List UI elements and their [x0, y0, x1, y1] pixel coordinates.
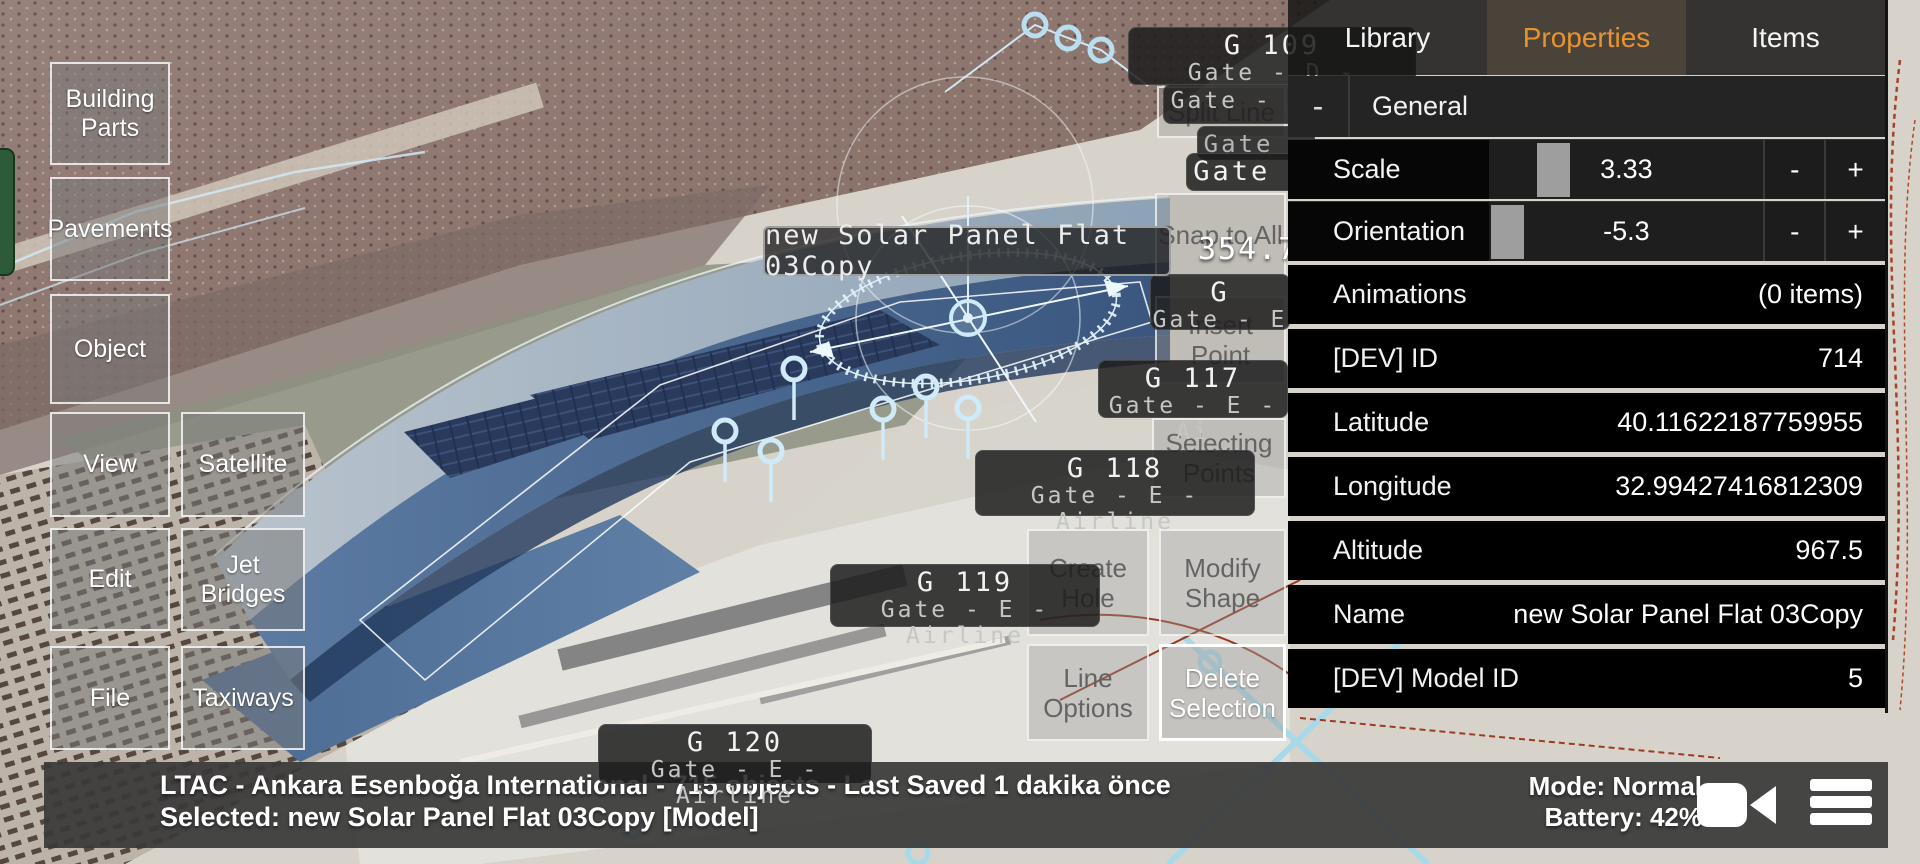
app-window: Building Parts Pavements Object View Sat…	[0, 0, 1920, 864]
name-value[interactable]: new Solar Panel Flat 03Copy	[1513, 599, 1885, 630]
sidebar-item-edit[interactable]: Edit	[50, 528, 170, 631]
scale-slider-handle[interactable]	[1537, 143, 1570, 197]
gate-label-gate-e: G Gate - E	[1150, 274, 1290, 330]
animations-label: Animations	[1288, 279, 1467, 310]
animations-value: (0 items)	[1758, 279, 1885, 310]
orientation-label: Orientation	[1288, 202, 1489, 261]
scale-increment-button[interactable]: +	[1824, 140, 1885, 199]
altitude-value[interactable]: 967.5	[1795, 535, 1885, 566]
dev-id-row: [DEV] ID 714	[1288, 329, 1885, 388]
line-options-button[interactable]: Line Options	[1027, 644, 1149, 741]
mode-battery-text: Mode: Normal Battery: 42%	[1529, 771, 1702, 833]
orientation-slider-handle[interactable]	[1491, 205, 1524, 259]
modify-shape-button[interactable]: Modify Shape	[1159, 529, 1286, 636]
sidebar-item-jet-bridges[interactable]: Jet Bridges	[181, 528, 305, 631]
scale-decrement-button[interactable]: -	[1763, 140, 1824, 199]
longitude-row: Longitude 32.99427416812309	[1288, 457, 1885, 516]
name-row: Name new Solar Panel Flat 03Copy	[1288, 585, 1885, 644]
gate-label-g117: G 117 Gate - E - Ai	[1098, 360, 1288, 418]
dev-model-id-row: [DEV] Model ID 5	[1288, 649, 1885, 708]
rotation-readout: 354.7	[1198, 232, 1298, 267]
battery-text: Battery: 42%	[1529, 802, 1702, 833]
longitude-label: Longitude	[1288, 471, 1452, 502]
panel-tab-bar: Library Properties Items	[1288, 0, 1885, 75]
altitude-row: Altitude 967.5	[1288, 521, 1885, 580]
scale-label: Scale	[1288, 140, 1489, 199]
sidebar-item-taxiways[interactable]: Taxiways	[181, 646, 305, 750]
collapse-section-button[interactable]: -	[1288, 76, 1350, 137]
longitude-value[interactable]: 32.99427416812309	[1615, 471, 1885, 502]
selected-object-label: new Solar Panel Flat 03Copy	[763, 226, 1171, 276]
scale-row: Scale 3.33 - +	[1288, 139, 1885, 199]
status-bar: LTAC - Ankara Esenboğa International - 7…	[44, 762, 1888, 848]
property-rows: Animations (0 items) [DEV] ID 714 Latitu…	[1288, 265, 1885, 713]
orientation-value: -5.3	[1603, 216, 1650, 247]
gate-label-g118: G 118 Gate - E - Airline	[975, 450, 1255, 516]
sidebar-item-pavements[interactable]: Pavements	[50, 177, 170, 281]
tab-items[interactable]: Items	[1686, 0, 1885, 75]
name-label: Name	[1288, 599, 1405, 630]
sidebar-item-building-parts[interactable]: Building Parts	[50, 62, 170, 165]
video-camera-icon[interactable]	[1696, 780, 1778, 830]
tab-library[interactable]: Library	[1288, 0, 1487, 75]
orientation-decrement-button[interactable]: -	[1763, 202, 1824, 261]
dev-id-label: [DEV] ID	[1288, 343, 1438, 374]
sidebar-item-satellite[interactable]: Satellite	[181, 412, 305, 517]
section-title: General	[1350, 91, 1468, 122]
scale-slider[interactable]: 3.33	[1489, 140, 1763, 199]
dev-id-value: 714	[1818, 343, 1885, 374]
tab-properties[interactable]: Properties	[1487, 0, 1686, 75]
animations-row[interactable]: Animations (0 items)	[1288, 265, 1885, 324]
hamburger-menu-icon[interactable]	[1810, 779, 1872, 830]
delete-selection-button[interactable]: Delete Selection	[1159, 644, 1286, 741]
latitude-label: Latitude	[1288, 407, 1429, 438]
mode-text: Mode: Normal	[1529, 771, 1702, 802]
sidebar-item-file[interactable]: File	[50, 646, 170, 750]
orientation-increment-button[interactable]: +	[1824, 202, 1885, 261]
orientation-row: Orientation -5.3 - +	[1288, 201, 1885, 261]
latitude-row: Latitude 40.11622187759955	[1288, 393, 1885, 452]
sidebar-item-view[interactable]: View	[50, 412, 170, 517]
orientation-slider[interactable]: -5.3	[1489, 202, 1763, 261]
scale-value: 3.33	[1600, 154, 1653, 185]
dev-model-id-value: 5	[1848, 663, 1885, 694]
dev-model-id-label: [DEV] Model ID	[1288, 663, 1519, 694]
gate-label-g119: G 119 Gate - E - Airline	[830, 564, 1100, 627]
general-section-header: - General	[1288, 76, 1885, 137]
latitude-value[interactable]: 40.11622187759955	[1617, 407, 1885, 438]
altitude-label: Altitude	[1288, 535, 1423, 566]
sidebar-item-object[interactable]: Object	[50, 294, 170, 404]
gate-label-g120: G 120 Gate - E - Airline	[598, 724, 872, 784]
side-panel-handle[interactable]	[0, 148, 15, 276]
properties-panel: Library Properties Items - General Scale…	[1288, 0, 1888, 713]
